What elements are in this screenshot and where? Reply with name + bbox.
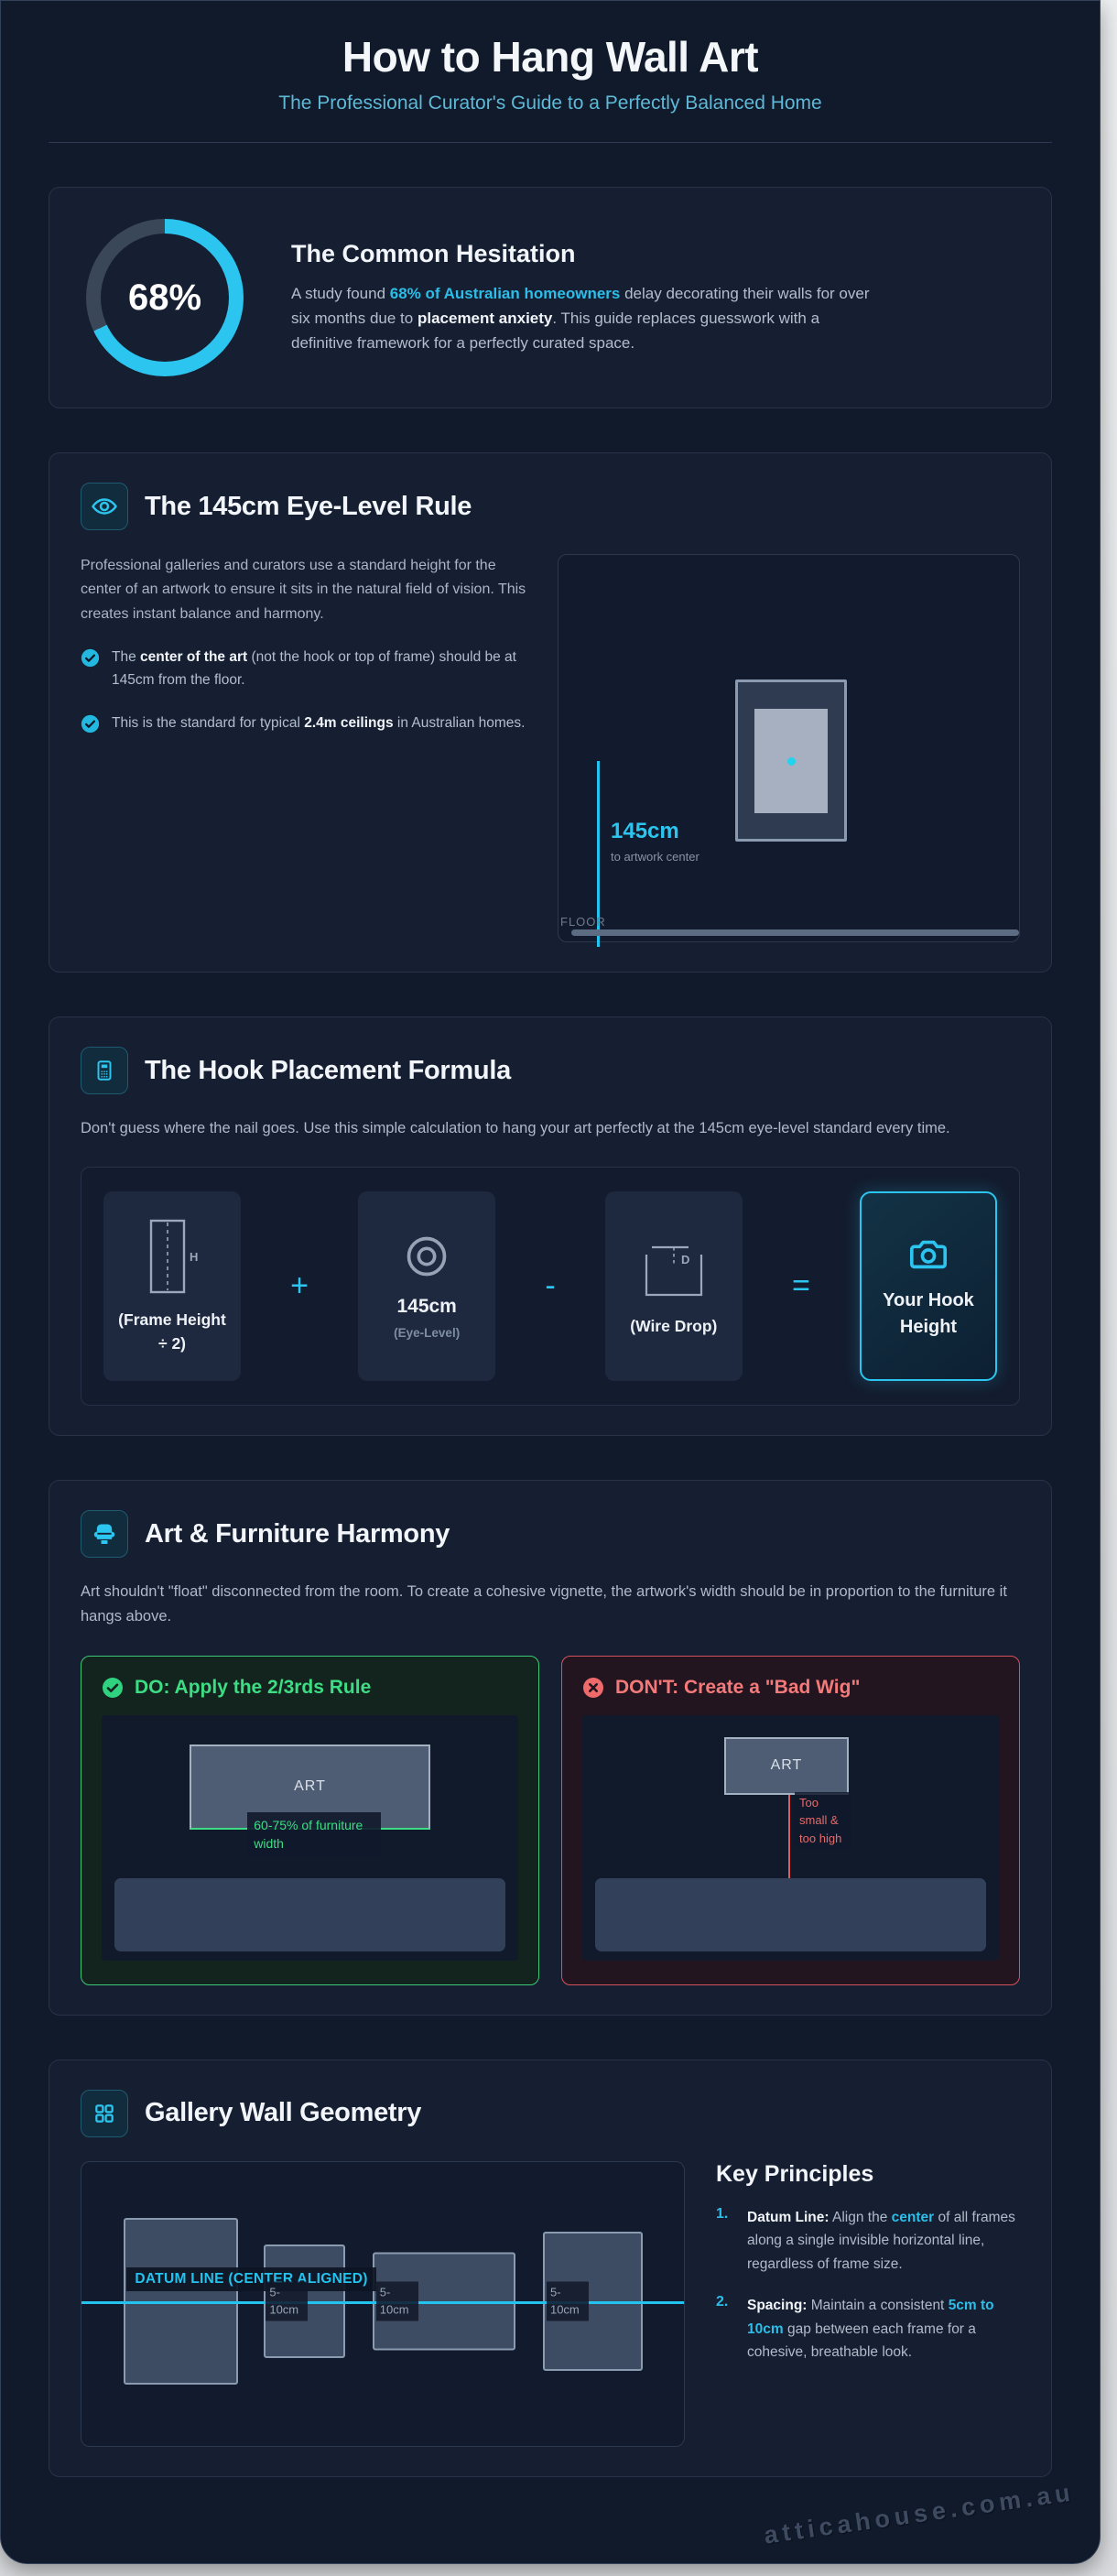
harmony-paragraph: Art shouldn't "float" disconnected from … [81,1580,1020,1629]
datum-line-label: DATUM LINE (CENTER ALIGNED) [126,2267,375,2291]
furniture-block [595,1878,987,1951]
x-circle-icon [582,1677,604,1699]
key-principles: Key Principles 1. Datum Line: Align the … [716,2161,1020,2447]
bullet-text: The center of the art (not the hook or t… [112,647,530,692]
formula-result-label: Your Hook Height [873,1288,984,1341]
hesitation-title: The Common Hesitation [291,240,877,268]
floor-bar [571,929,1019,936]
gap-label: 5-10cm [266,2281,308,2321]
infographic-page: How to Hang Wall Art The Professional Cu… [0,0,1101,2564]
dont-card-title: DON'T: Create a "Bad Wig" [615,1677,860,1699]
eye-icon [81,483,128,530]
harmony-header: Art & Furniture Harmony [81,1510,1020,1558]
section-harmony: Art & Furniture Harmony Art shouldn't "f… [49,1480,1052,2015]
donut-hole: 68% [101,234,229,362]
plus-operator: + [290,1268,309,1304]
minus-operator: - [545,1268,555,1304]
formula-box-value: 145cm [394,1293,460,1321]
dont-card: DON'T: Create a "Bad Wig" ART Too small … [561,1656,1020,1985]
do-card: DO: Apply the 2/3rds Rule ART 60-75% of … [81,1656,539,1985]
section-eye-level-rule: The 145cm Eye-Level Rule Professional ga… [49,452,1052,973]
header-divider [49,142,1052,143]
formula-box-wire-drop: D (Wire Drop) [605,1191,743,1381]
calculator-icon [81,1047,128,1094]
header: How to Hang Wall Art The Professional Cu… [49,32,1052,143]
frame-height-icon: H [144,1217,201,1296]
formula-equation: H (Frame Height ÷ 2) + 145cm (Eye-Level)… [81,1167,1020,1406]
do-annotation: 60-75% of furniture width [247,1812,381,1857]
check-circle-icon [102,1677,124,1699]
donut-center-label: 68% [128,277,201,319]
do-card-title-row: DO: Apply the 2/3rds Rule [102,1677,518,1699]
hesitation-paragraph: A study found 68% of Australian homeowne… [291,281,877,356]
svg-text:D: D [681,1253,689,1266]
diagram-artwork [754,709,828,813]
principle-number: 1. [716,2206,736,2277]
hesitation-text-block: The Common Hesitation A study found 68% … [291,240,877,356]
formula-title: The Hook Placement Formula [145,1056,511,1086]
page-subtitle: The Professional Curator's Guide to a Pe… [49,92,1052,114]
list-item: This is the standard for typical 2.4m ce… [81,712,530,735]
gap-line [788,1795,790,1879]
measure-value: 145cm [611,819,679,844]
furniture-block [114,1878,506,1951]
art-label: ART [294,1778,326,1795]
formula-box-label: (Wire Drop) [630,1315,717,1338]
principle-item: 2. Spacing: Maintain a consistent 5cm to… [716,2294,1020,2364]
equals-operator: = [792,1268,810,1304]
gap-label: 5-10cm [376,2281,418,2321]
formula-paragraph: Don't guess where the nail goes. Use thi… [81,1116,1020,1141]
gallery-title: Gallery Wall Geometry [145,2098,421,2128]
gallery-header: Gallery Wall Geometry [81,2090,1020,2137]
dont-art-frame: ART [724,1737,850,1795]
diagram-artwork-frame [735,679,847,842]
harmony-title: Art & Furniture Harmony [145,1519,450,1549]
dont-diagram: ART Too small & too high [582,1715,999,1961]
principle-text: Spacing: Maintain a consistent 5cm to 10… [747,2294,1020,2364]
formula-box-eye-level: 145cm (Eye-Level) [358,1191,495,1381]
eye-rule-header: The 145cm Eye-Level Rule [81,483,1020,530]
section-hook-formula: The Hook Placement Formula Don't guess w… [49,1016,1052,1436]
floor-label: FLOOR [560,915,606,929]
eye-level-icon [403,1233,450,1280]
eye-rule-title: The 145cm Eye-Level Rule [145,492,472,522]
formula-result-box: Your Hook Height [860,1191,997,1381]
armchair-icon [81,1510,128,1558]
bullet-text: This is the standard for typical 2.4m ce… [112,712,525,735]
check-circle-icon [81,648,100,668]
camera-icon [907,1233,949,1275]
art-label: ART [771,1757,803,1774]
eye-rule-text-column: Professional galleries and curators use … [81,554,530,942]
svg-text:H: H [190,1250,198,1264]
donut-chart: 68% [86,219,244,376]
section-common-hesitation: 68% The Common Hesitation A study found … [49,187,1052,408]
gallery-diagram: DATUM LINE (CENTER ALIGNED) 5-10cm 5-10c… [81,2161,685,2447]
do-diagram: ART 60-75% of furniture width [102,1715,518,1961]
artwork-center-dot [787,757,796,766]
principle-number: 2. [716,2294,736,2364]
formula-box-frame-height: H (Frame Height ÷ 2) [103,1191,241,1381]
do-card-title: DO: Apply the 2/3rds Rule [135,1677,371,1699]
formula-header: The Hook Placement Formula [81,1047,1020,1094]
formula-box-sub: (Eye-Level) [394,1326,460,1340]
check-circle-icon [81,714,100,734]
eye-rule-paragraph: Professional galleries and curators use … [81,554,530,626]
eye-level-diagram: 145cm to artwork center FLOOR [558,554,1020,942]
dont-annotation: Too small & too high [795,1792,851,1850]
wire-drop-icon: D [637,1234,710,1302]
gap-label: 5-10cm [547,2281,589,2321]
measure-caption: to artwork center [611,850,699,864]
grid-icon [81,2090,128,2137]
watermark: atticahouse.com.au [762,2478,1076,2549]
list-item: The center of the art (not the hook or t… [81,647,530,692]
key-principles-title: Key Principles [716,2161,1020,2188]
section-gallery-wall: Gallery Wall Geometry DATUM LINE (CENTER… [49,2060,1052,2477]
dont-card-title-row: DON'T: Create a "Bad Wig" [582,1677,999,1699]
page-title: How to Hang Wall Art [49,32,1052,82]
principle-text: Datum Line: Align the center of all fram… [747,2206,1020,2277]
principle-item: 1. Datum Line: Align the center of all f… [716,2206,1020,2277]
formula-box-label: (Frame Height ÷ 2) [114,1309,230,1355]
